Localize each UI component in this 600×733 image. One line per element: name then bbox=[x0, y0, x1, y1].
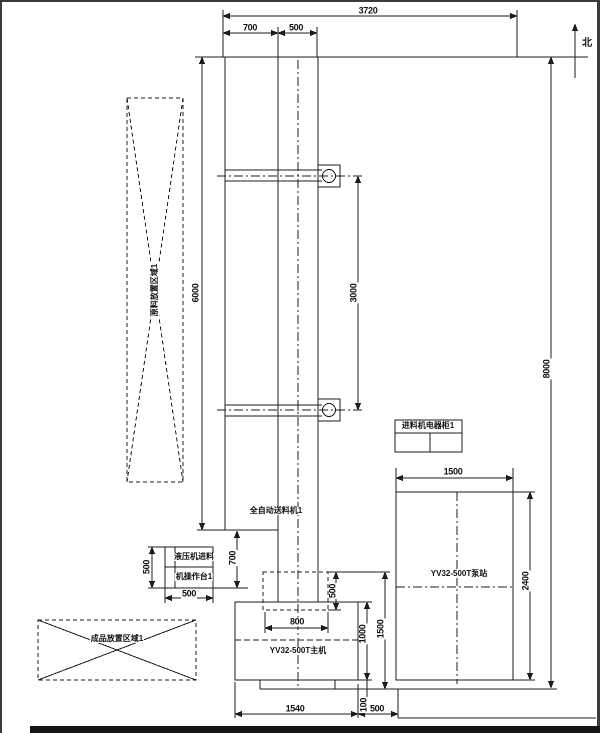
label-feeder-cabinet: 进料机电器柜1 bbox=[401, 422, 455, 430]
image-border-left bbox=[0, 0, 2, 733]
label-main-press: YV32-500T主机 bbox=[269, 647, 327, 655]
label-raw-material-area: 原料放置区域1 bbox=[151, 263, 159, 317]
dim-pump-width: 1500 bbox=[443, 468, 464, 477]
dim-slide-width: 800 bbox=[289, 618, 305, 627]
centerlines bbox=[217, 60, 513, 686]
dim-press-gap: 500 bbox=[369, 705, 385, 714]
dim-top-seg-500: 500 bbox=[288, 24, 304, 33]
dim-pump-depth: 2400 bbox=[522, 571, 531, 592]
pump-outline bbox=[396, 492, 513, 680]
dim-frame-height: 6000 bbox=[192, 283, 201, 304]
floor-plan-drawing: 3720 700 500 6000 3000 8000 700 500 500 … bbox=[0, 0, 600, 733]
dim-base-lip: 100 bbox=[360, 697, 369, 713]
solid-lines bbox=[148, 10, 596, 718]
north-label: 北 bbox=[581, 39, 593, 49]
dimension-lines bbox=[152, 16, 575, 714]
dim-slide-height: 500 bbox=[329, 583, 338, 599]
dim-feeder-offset: 700 bbox=[229, 550, 238, 566]
press-outline bbox=[235, 602, 358, 680]
label-console-line2: 机操作台1 bbox=[175, 573, 213, 581]
dim-top-seg-700: 700 bbox=[242, 24, 258, 33]
image-border-bottom bbox=[30, 726, 600, 733]
image-border-top bbox=[0, 0, 600, 2]
label-pump-station: YV32-500T泵站 bbox=[430, 570, 488, 578]
dim-press-total: 1500 bbox=[377, 619, 386, 640]
label-console-line1: 液压机进料 bbox=[173, 553, 215, 561]
dim-press-body: 1000 bbox=[359, 624, 368, 645]
finished-area-cross bbox=[38, 620, 196, 680]
dim-console-width: 500 bbox=[181, 590, 197, 599]
label-auto-feeder: 全自动送料机1 bbox=[249, 507, 303, 515]
dim-overall-width: 3720 bbox=[358, 7, 379, 16]
dim-press-width: 1540 bbox=[285, 705, 306, 714]
dim-arm-spacing: 3000 bbox=[350, 283, 359, 304]
label-finished-area: 成品放置区域1 bbox=[90, 635, 144, 643]
dim-console-height: 500 bbox=[143, 559, 152, 575]
dim-site-depth: 8000 bbox=[543, 359, 552, 380]
